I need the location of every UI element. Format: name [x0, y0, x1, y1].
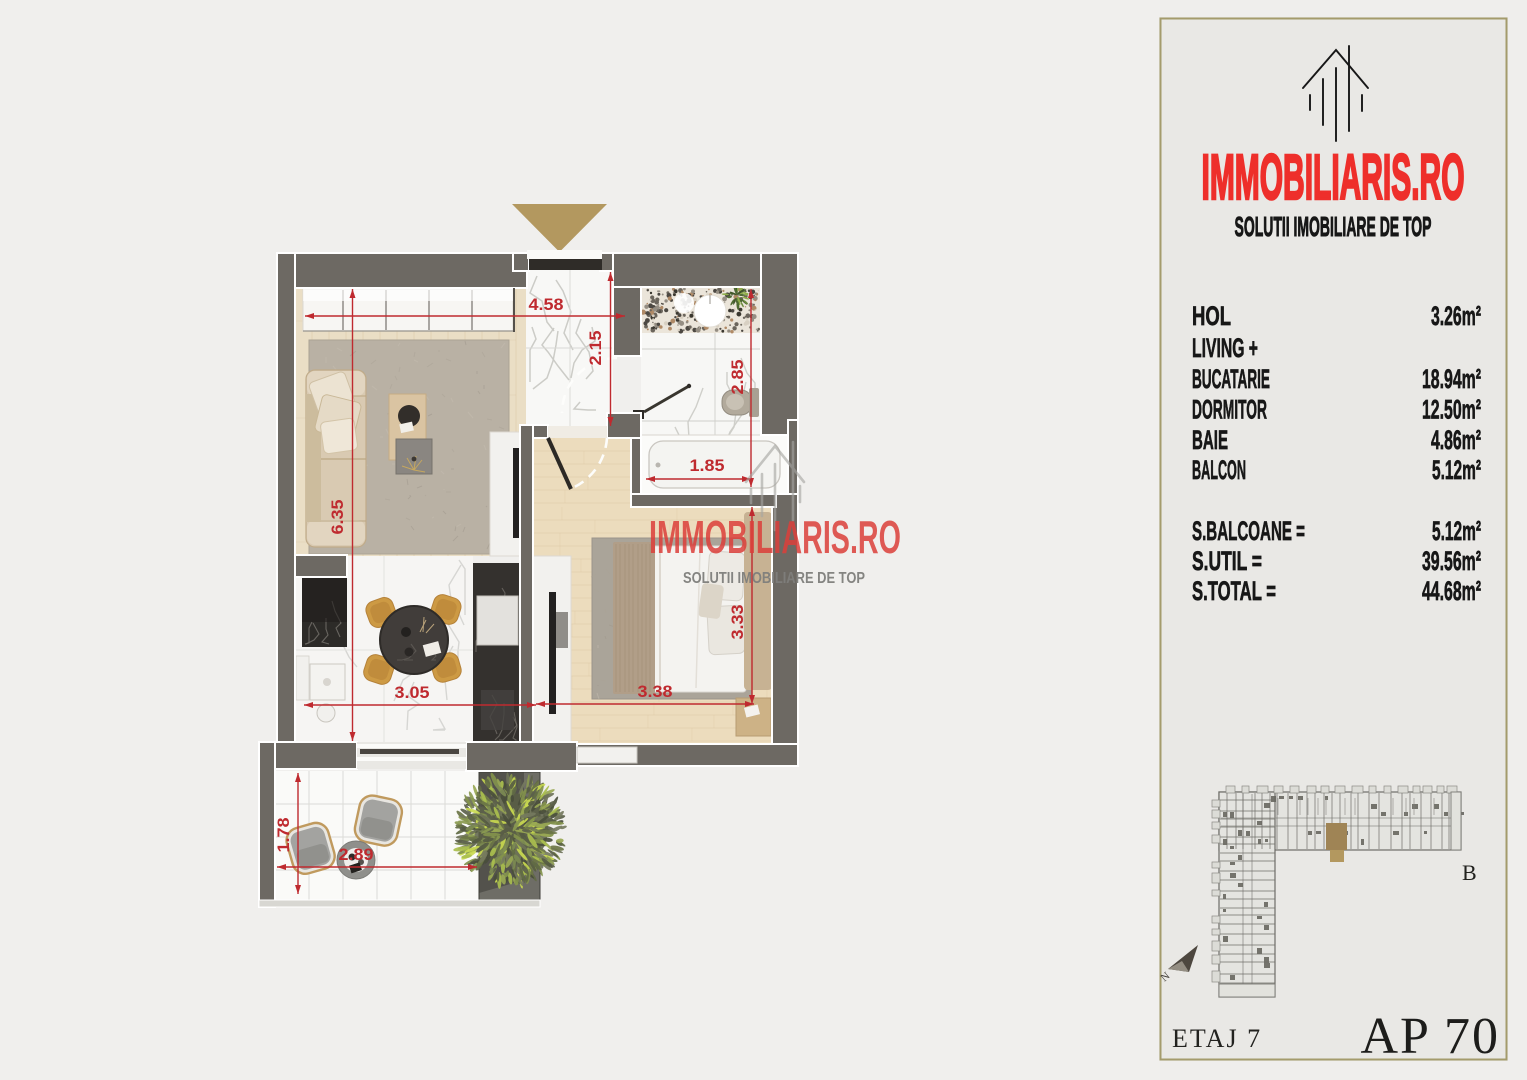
svg-text:HOL: HOL	[1192, 301, 1231, 331]
svg-text:BUCATARIE: BUCATARIE	[1192, 364, 1270, 394]
svg-text:IMMOBILIARIS.RO: IMMOBILIARIS.RO	[649, 511, 901, 563]
svg-text:SOLUTII IMOBILIARE DE TOP: SOLUTII IMOBILIARE DE TOP	[683, 570, 865, 587]
svg-text:DORMITOR: DORMITOR	[1192, 395, 1267, 425]
svg-text:3.33: 3.33	[728, 605, 747, 640]
svg-text:S.BALCOANE =: S.BALCOANE =	[1192, 516, 1305, 546]
svg-text:44.68m²: 44.68m²	[1422, 576, 1481, 606]
svg-text:2.89: 2.89	[339, 845, 374, 864]
svg-text:4.58: 4.58	[529, 295, 564, 314]
svg-text:3.05: 3.05	[395, 683, 430, 702]
svg-text:2.85: 2.85	[728, 360, 747, 395]
svg-text:IMMOBILIARIS.RO: IMMOBILIARIS.RO	[1202, 141, 1465, 213]
svg-text:B: B	[1462, 860, 1477, 885]
svg-text:2.15: 2.15	[586, 331, 605, 366]
svg-text:SOLUTII IMOBILIARE DE TOP: SOLUTII IMOBILIARE DE TOP	[1235, 211, 1432, 242]
svg-text:5.12m²: 5.12m²	[1432, 455, 1481, 485]
svg-text:3.26m²: 3.26m²	[1431, 301, 1481, 331]
svg-text:5.12m²: 5.12m²	[1432, 516, 1481, 546]
svg-text:LIVING +: LIVING +	[1192, 333, 1258, 363]
svg-text:BALCON: BALCON	[1192, 455, 1246, 485]
svg-text:4.86m²: 4.86m²	[1431, 425, 1481, 455]
svg-text:BAIE: BAIE	[1192, 425, 1228, 455]
svg-text:12.50m²: 12.50m²	[1422, 395, 1481, 425]
svg-text:6.35: 6.35	[328, 500, 347, 535]
svg-text:1.85: 1.85	[690, 456, 725, 475]
svg-text:18.94m²: 18.94m²	[1422, 364, 1481, 394]
svg-text:S.TOTAL =: S.TOTAL =	[1192, 576, 1276, 606]
svg-text:3.38: 3.38	[638, 682, 673, 701]
svg-text:ETAJ 7: ETAJ 7	[1172, 1024, 1262, 1053]
svg-text:S.UTIL =: S.UTIL =	[1192, 546, 1262, 576]
svg-text:1.78: 1.78	[274, 818, 293, 853]
svg-text:39.56m²: 39.56m²	[1422, 546, 1481, 576]
svg-text:AP 70: AP 70	[1360, 1008, 1500, 1065]
